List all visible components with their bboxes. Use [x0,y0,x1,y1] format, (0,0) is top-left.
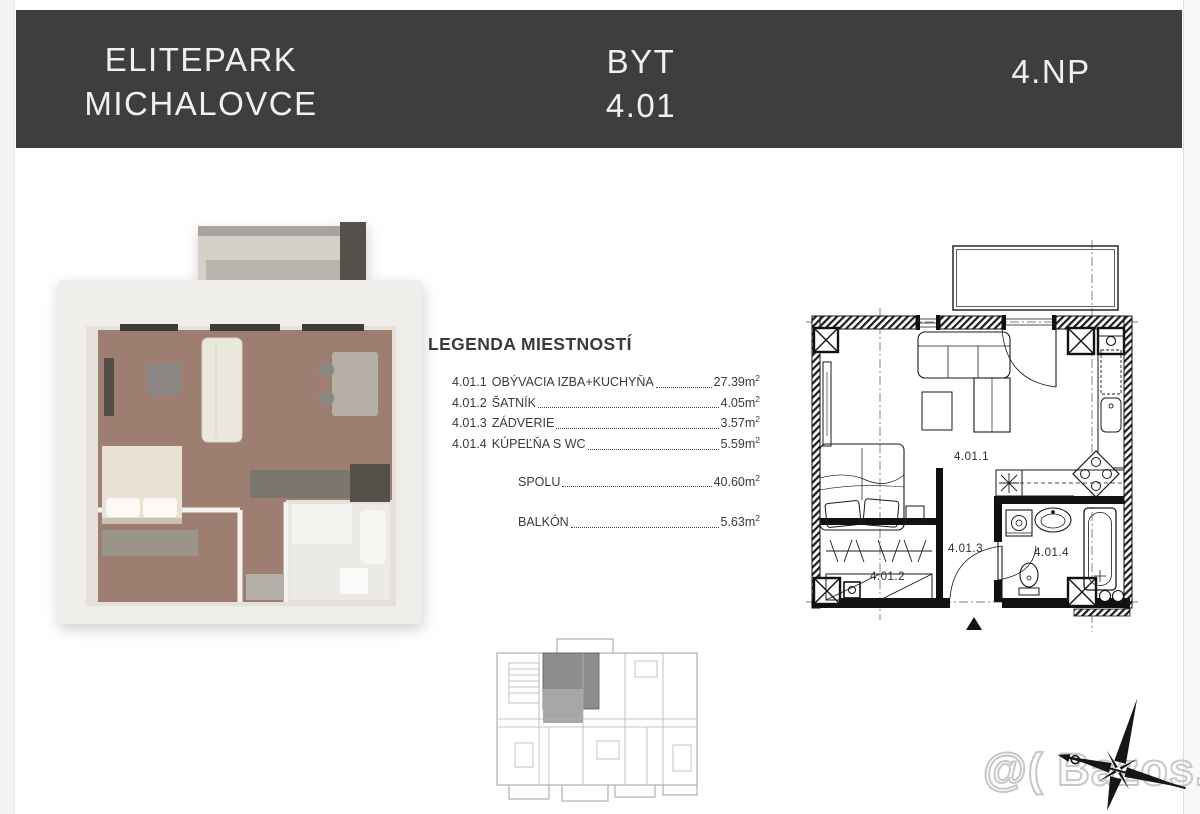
flyer-page: ELITEPARK MICHALOVCE BYT 4.01 4.NP [0,0,1200,814]
kitchen-symbols [996,336,1124,497]
legend: LEGENDA MIESTNOSTÍ 4.01.1 OBÝVACIA IZBA+… [428,334,760,531]
legend-rows: 4.01.1 OBÝVACIA IZBA+KUCHYŇA 27.39m2 4.0… [452,370,760,531]
render-bed [102,446,182,524]
room-label-entry: 4.01.3 [948,543,983,555]
project-title: ELITEPARK MICHALOVCE [56,38,346,126]
legend-row: 4.01.2 ŠATNÍK 4.05m2 [452,391,760,412]
dot-leader [562,486,711,487]
dot-leader [571,527,719,528]
floorplan-2d: 4.01.1 4.01.2 4.01.3 4.01.4 [806,240,1138,637]
unit-title: BYT 4.01 [536,40,746,128]
room-area: 5.59m2 [721,432,761,453]
render-entry-mat [246,574,284,600]
room-name: ŠATNÍK [492,395,536,412]
room-label-living: 4.01.1 [954,451,989,463]
room-code: 4.01.4 [452,436,487,453]
room-code: 4.01.1 [452,374,487,391]
render-tub [360,510,386,564]
unit-label: BYT [536,40,746,84]
room-labels: 4.01.1 4.01.2 4.01.3 4.01.4 [870,451,1069,583]
render-shower [292,504,352,544]
room-label-bathroom: 4.01.4 [1034,547,1069,559]
render-washer [340,568,368,594]
render-tv-cabinet [104,358,114,416]
compass-rose-drawing [1040,688,1200,814]
left-margin-strip [0,0,15,814]
render-stool [318,390,334,406]
dot-leader [588,449,719,450]
render-window-frames [120,324,364,331]
render-sofa [202,338,242,442]
room-area: 3.57m2 [721,411,761,432]
room-area: 27.39m2 [714,370,760,391]
room-name: OBÝVACIA IZBA+KUCHYŇA [492,374,654,391]
legend-row: 4.01.3 ZÁDVERIE 3.57m2 [452,411,760,432]
unit-number: 4.01 [536,84,746,128]
keyplan-highlighted-unit-lower [543,689,583,723]
render-wardrobe-shelf [102,530,198,556]
keyplan-drawing [487,633,713,810]
dot-leader [656,387,712,388]
legend-row: 4.01.1 OBÝVACIA IZBA+KUCHYŇA 27.39m2 [452,370,760,391]
render-kitchen-island [332,352,378,416]
balcony-area: 5.63m2 [721,510,761,531]
render-3d-floorplan [40,218,430,637]
compass-rose-icon [1040,688,1200,814]
legend-balcony-row: BALKÓN 5.63m2 [518,510,760,531]
room-label-wardrobe: 4.01.2 [870,571,905,583]
render-3d-drawing [40,218,430,632]
room-code: 4.01.3 [452,415,487,432]
bed-symbol [820,444,924,530]
legend-total-row: SPOLU 40.60m2 [518,470,760,491]
room-name: ZÁDVERIE [492,415,555,432]
keyplan-map [487,633,713,814]
render-kitchen-counter-dark [350,464,390,502]
balcony-outline [953,246,1118,310]
render-kitchen-counter [250,470,354,498]
render-stool [318,362,334,378]
room-area: 4.05m2 [721,391,761,412]
total-label: SPOLU [518,474,560,491]
legend-row: 4.01.4 KÚPEĽŇA S WC 5.59m2 [452,432,760,453]
room-name: KÚPEĽŇA S WC [492,436,586,453]
legend-title: LEGENDA MIESTNOSTÍ [428,334,760,355]
render-coffee-table [147,363,181,395]
project-title-line2: MICHALOVCE [56,82,346,126]
room-code: 4.01.2 [452,395,487,412]
north-arrow-icon [966,617,982,630]
floor-label: 4.NP [946,52,1156,92]
dot-leader [538,407,719,408]
project-title-line1: ELITEPARK [56,38,346,82]
wardrobe-symbols [826,540,932,600]
header-bar: ELITEPARK MICHALOVCE BYT 4.01 4.NP [16,10,1182,148]
balcony-label: BALKÓN [518,514,569,531]
structural-columns [814,328,1124,606]
total-area: 40.60m2 [714,470,760,491]
living-furniture [823,332,1010,446]
floorplan-2d-drawing: 4.01.1 4.01.2 4.01.3 4.01.4 [806,240,1138,632]
dot-leader [556,428,718,429]
